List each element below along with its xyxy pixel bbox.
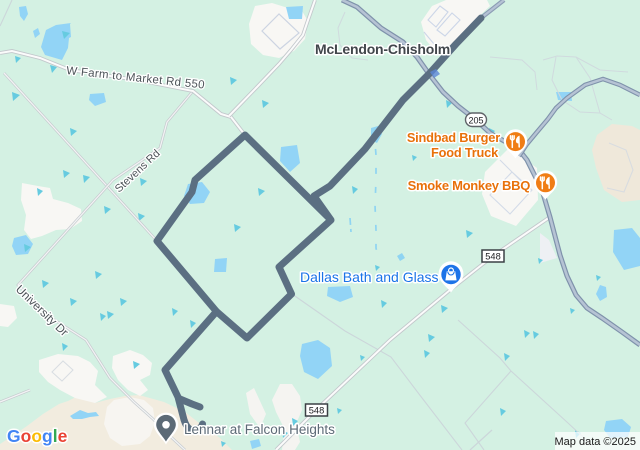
svg-text:Smoke Monkey BBQ: Smoke Monkey BBQ [408,178,531,193]
svg-text:Lennar at Falcon Heights: Lennar at Falcon Heights [184,422,335,437]
svg-text:Google: Google [7,426,68,446]
svg-text:Food Truck: Food Truck [431,145,499,160]
svg-text:548: 548 [309,406,325,416]
svg-text:Sindbad Burger: Sindbad Burger [407,130,500,145]
svg-text:548: 548 [485,252,501,262]
svg-text:Map data ©2025: Map data ©2025 [555,436,637,448]
svg-text:205: 205 [468,115,483,125]
svg-text:Dallas Bath and Glass: Dallas Bath and Glass [300,269,439,285]
svg-text:McLendon-Chisholm: McLendon-Chisholm [315,41,450,57]
